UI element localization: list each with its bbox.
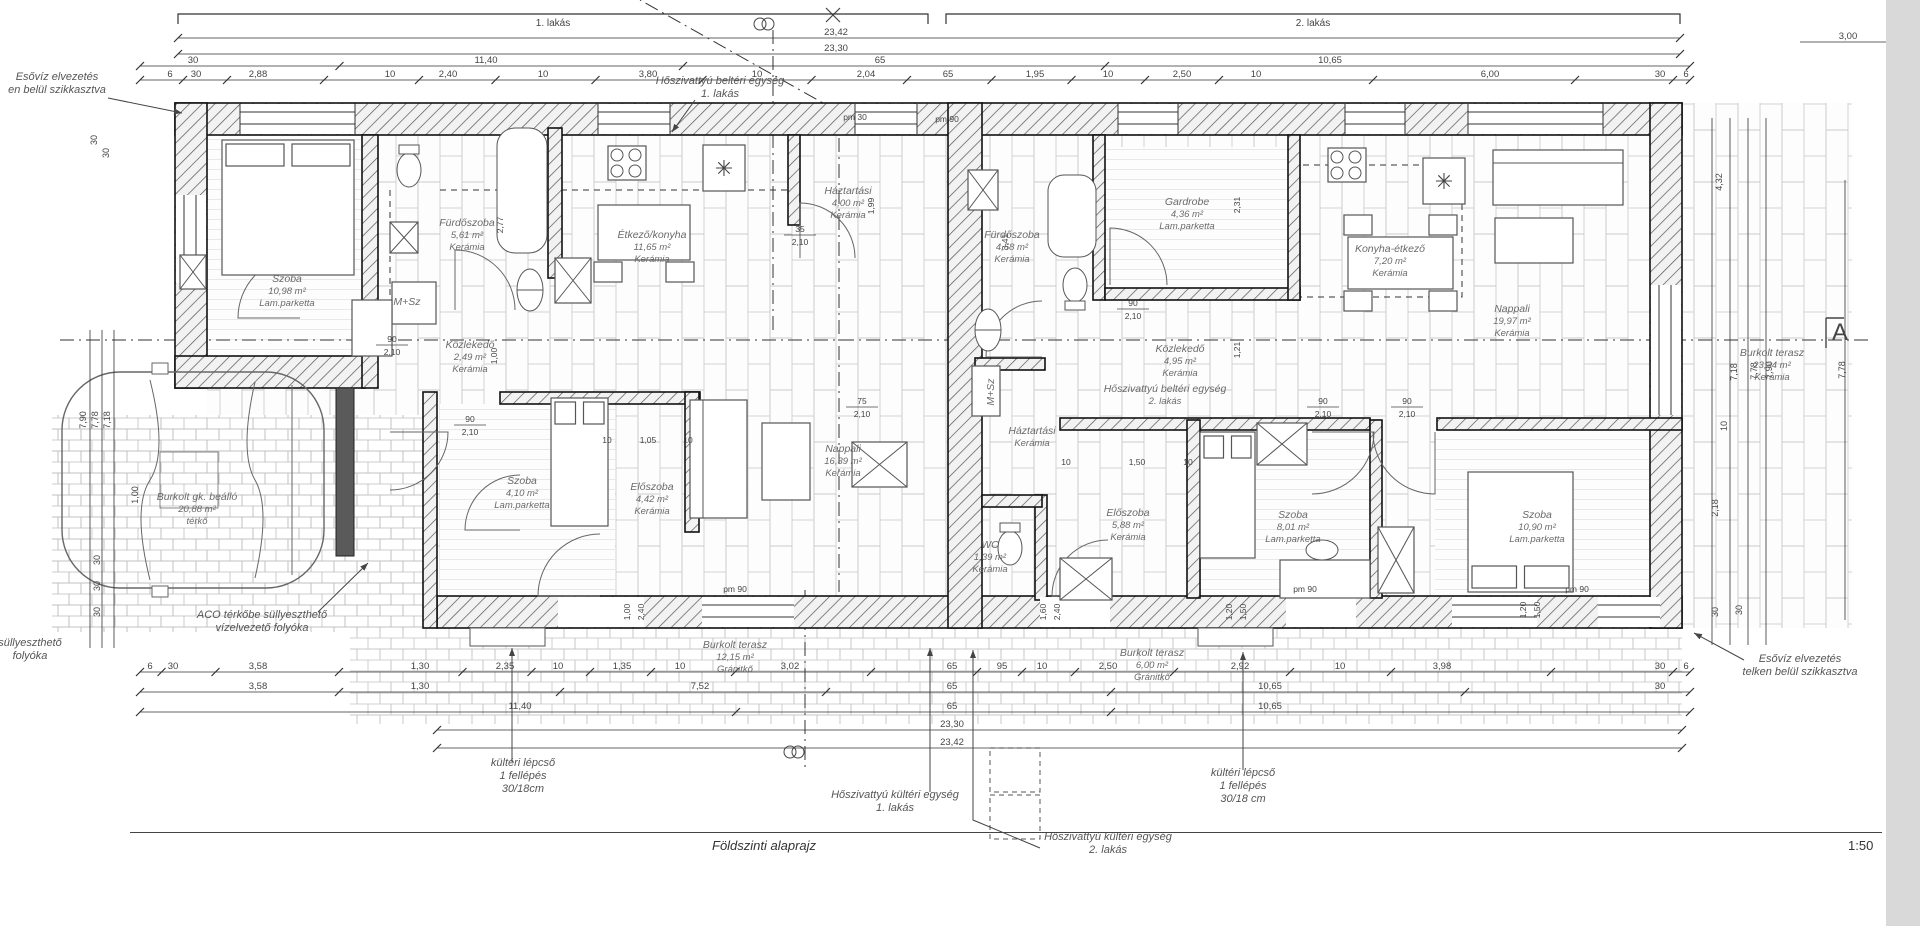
door-dim-top: 35 bbox=[795, 224, 805, 234]
coffee-table-icon bbox=[1495, 218, 1573, 263]
dim-label: 2,50 bbox=[1173, 69, 1192, 80]
annotation-hoszivattyu-kulteri-1: Hőszivattyú kültéri egység1. lakás bbox=[831, 789, 960, 814]
chair-icon bbox=[594, 262, 622, 282]
left-dim: 7,90 bbox=[78, 411, 88, 429]
left-dim: 7,78 bbox=[90, 411, 100, 429]
small-dim: 2,31 bbox=[1232, 196, 1242, 213]
dim-label: 65 bbox=[947, 661, 958, 672]
small-dim: 10 bbox=[602, 435, 612, 445]
small-dim: 1,20 bbox=[1224, 603, 1234, 620]
dim-label: 1,30 bbox=[411, 661, 430, 672]
small-dim: 10 bbox=[1061, 457, 1071, 467]
dim-label: 10 bbox=[1037, 661, 1048, 672]
chair-icon bbox=[666, 262, 694, 282]
dim-label: 1,35 bbox=[613, 661, 632, 672]
bathtub-icon bbox=[1048, 175, 1096, 257]
stove-icon bbox=[608, 146, 646, 180]
toilet-icon bbox=[1063, 268, 1087, 310]
dim-label: 11,40 bbox=[474, 55, 497, 66]
dim-label: 3,58 bbox=[249, 661, 268, 672]
small-dim: 2,77 bbox=[495, 216, 505, 233]
door-dim-top: 90 bbox=[1402, 396, 1412, 406]
fridge-asterisk-icon: ✳ bbox=[1435, 169, 1453, 194]
small-dim: 1,20 bbox=[1518, 601, 1528, 618]
room-label-nappali-2: Nappali19,97 m²Kerámia bbox=[1493, 303, 1531, 339]
right-dim: 4,32 bbox=[1714, 173, 1724, 191]
room-label-nappali-1: Nappali16,39 m²Kerámia bbox=[824, 443, 862, 479]
fridge-asterisk-icon: ✳ bbox=[715, 156, 733, 181]
door-dim-bottom: 2,10 bbox=[384, 347, 401, 357]
right-dim: 7,78 bbox=[1837, 361, 1847, 379]
annotation-folyoka-left: süllyeszthetőfolyóka bbox=[0, 637, 63, 662]
small-dim: 1,21 bbox=[1232, 341, 1242, 358]
dim-label: 10 bbox=[538, 69, 549, 80]
pillow-icon bbox=[1232, 436, 1252, 458]
small-dim: 1,50 bbox=[1532, 601, 1542, 618]
chair-icon bbox=[1344, 291, 1372, 311]
small-dim: pm 30 bbox=[843, 112, 867, 122]
dim-label: 10 bbox=[1335, 661, 1346, 672]
dim-label: 10,65 bbox=[1258, 681, 1282, 692]
small-dim: pm 90 bbox=[1565, 584, 1589, 594]
stove-icon bbox=[1328, 148, 1366, 182]
dim-label: 10,65 bbox=[1258, 701, 1282, 712]
left-dim: 30 bbox=[92, 555, 102, 565]
dim-label: 10 bbox=[1251, 69, 1262, 80]
pillow-icon bbox=[226, 144, 284, 166]
dim-label: 1,95 bbox=[1026, 69, 1045, 80]
dim-label: 3,58 bbox=[249, 681, 268, 692]
coffee-table-icon bbox=[762, 423, 810, 500]
dim-label: 30 bbox=[188, 55, 199, 66]
dim-label: 6,00 bbox=[1481, 69, 1500, 80]
chair-icon bbox=[1429, 291, 1457, 311]
door-dim-bottom: 2,10 bbox=[1315, 409, 1332, 419]
apartment-bar-label-1: 1. lakás bbox=[536, 18, 570, 29]
dim-label: 30 bbox=[191, 69, 202, 80]
dim-label: 30 bbox=[1655, 661, 1666, 672]
dim-label: 3,80 bbox=[639, 69, 658, 80]
right-dim: 30 bbox=[1734, 605, 1744, 615]
right-dim: 2,18 bbox=[1710, 499, 1720, 517]
right-dim: 30 bbox=[1710, 607, 1720, 617]
left-dim: 7,18 bbox=[102, 411, 112, 429]
dim-label: 2,04 bbox=[857, 69, 876, 80]
section-marker-a: A bbox=[1832, 319, 1848, 346]
annotation-hoszivattyu-belteri-1: Hőszivattyú beltéri egység1. lakás bbox=[656, 75, 785, 100]
pillow-icon bbox=[292, 144, 350, 166]
dim-label: 6 bbox=[147, 661, 152, 672]
small-dim: pm 90 bbox=[1293, 584, 1317, 594]
annotation-esoviz-right: Esővíz elvezetéstelken belül szikkasztva bbox=[1743, 653, 1858, 678]
apartment-bar-label-2: 2. lakás bbox=[1296, 18, 1330, 29]
dim-label: 65 bbox=[947, 681, 958, 692]
total-dim: 23,42 bbox=[940, 737, 964, 748]
door-dim-top: 90 bbox=[1318, 396, 1328, 406]
small-dim: 2,40 bbox=[1052, 603, 1062, 620]
door-dim-bottom: 2,10 bbox=[792, 237, 809, 247]
chair-icon bbox=[1344, 215, 1372, 235]
annotation-aco-folyoka: ACO térkőbe süllyeszthetővízelvezető fol… bbox=[196, 609, 328, 634]
pillow-icon bbox=[1204, 436, 1224, 458]
dim-label: 30 bbox=[1655, 69, 1666, 80]
pillow-icon bbox=[584, 402, 605, 424]
door-dim-bottom: 2,10 bbox=[1125, 311, 1142, 321]
dim-label: 10,65 bbox=[1318, 55, 1342, 66]
dim-label: 95 bbox=[997, 661, 1008, 672]
drawing-title: Földszinti alaprajz bbox=[712, 838, 816, 853]
left-dim: 30 bbox=[89, 135, 99, 145]
annotation-lepcso-left: kültéri lépcső1 fellépés30/18cm bbox=[491, 757, 556, 795]
dim-label: 6 bbox=[1683, 69, 1688, 80]
pillow-icon bbox=[555, 402, 576, 424]
dim-label: 10 bbox=[1103, 69, 1114, 80]
dim-label: 2,88 bbox=[249, 69, 268, 80]
dim-label: 10 bbox=[385, 69, 396, 80]
heatpump-outdoor-unit-icon bbox=[990, 748, 1040, 792]
small-dim: pm 90 bbox=[723, 584, 747, 594]
room-label-eloszoba-2: Előszoba5,88 m²Kerámia bbox=[1106, 507, 1149, 543]
left-dim: 30 bbox=[92, 581, 102, 591]
chair-icon bbox=[1429, 215, 1457, 235]
page-right-margin bbox=[1886, 0, 1920, 926]
dim-label: 3,98 bbox=[1433, 661, 1452, 672]
small-dim: 1,05 bbox=[640, 435, 657, 445]
left-dim: 30 bbox=[101, 148, 111, 158]
door-dim-top: 75 bbox=[857, 396, 867, 406]
door-dim-bottom: 2,10 bbox=[462, 427, 479, 437]
annotation-lepcso-right: kültéri lépcső1 fellépés30/18 cm bbox=[1211, 767, 1276, 805]
left-dim: 1,00 bbox=[130, 486, 140, 504]
drawing-scale: 1:50 bbox=[1848, 838, 1873, 853]
small-dim: 1,50 bbox=[1238, 603, 1248, 620]
dim-label: 2,50 bbox=[1099, 661, 1118, 672]
left-dim: 30 bbox=[92, 607, 102, 617]
small-dim: 1,50 bbox=[1129, 457, 1146, 467]
titleblock-rule bbox=[130, 832, 1882, 833]
floorplan-stage: ✳✳1. lakás2. lakás23,4223,303,003011,406… bbox=[0, 0, 1920, 926]
pillow-icon bbox=[1472, 566, 1517, 588]
dim-label: 6 bbox=[167, 69, 172, 80]
small-dim: 2,40 bbox=[636, 603, 646, 620]
door-dim-bottom: 2,10 bbox=[854, 409, 871, 419]
room-label-eloszoba-1: Előszoba4,42 m²Kerámia bbox=[630, 481, 673, 517]
small-dim: 1,60 bbox=[1038, 603, 1048, 620]
small-dim: pm 90 bbox=[935, 114, 959, 124]
pillow-icon bbox=[1525, 566, 1570, 588]
dim-label: 30 bbox=[1655, 681, 1666, 692]
dim-label: 3,02 bbox=[781, 661, 800, 672]
door-dim-top: 90 bbox=[465, 414, 475, 424]
floorplan-drawing: ✳✳1. lakás2. lakás23,4223,303,003011,406… bbox=[0, 0, 1920, 926]
right-dim: 7,18 bbox=[1729, 363, 1739, 381]
dim-label: 30 bbox=[168, 661, 179, 672]
dim-label: 2,40 bbox=[439, 69, 458, 80]
door-dim-bottom: 2,10 bbox=[1399, 409, 1416, 419]
dim-label: 10 bbox=[553, 661, 564, 672]
sofa-icon bbox=[1493, 150, 1623, 205]
door-dim-top: 90 bbox=[387, 334, 397, 344]
dim-label: 2,35 bbox=[496, 661, 515, 672]
dim-label: 65 bbox=[943, 69, 954, 80]
small-dim: 1,00 bbox=[622, 603, 632, 620]
dim-label: 65 bbox=[875, 55, 886, 66]
top-right-dim: 3,00 bbox=[1839, 31, 1858, 42]
total-dim: 23,30 bbox=[940, 719, 964, 730]
annotation-hoszivattyu-kulteri-2: Hőszivattyú kültéri egység2. lakás bbox=[1044, 831, 1173, 856]
toilet-icon bbox=[397, 145, 421, 187]
total-dim: 23,42 bbox=[824, 27, 848, 38]
small-dim: 10 bbox=[683, 435, 693, 445]
dim-label: 2,92 bbox=[1231, 661, 1250, 672]
room-label-msz-1: M+Sz bbox=[393, 296, 421, 308]
door-dim-top: 90 bbox=[1128, 298, 1138, 308]
dim-label: 10 bbox=[675, 661, 686, 672]
dim-label: 1,30 bbox=[411, 681, 430, 692]
annotation-esoviz-left: Esővíz elvezetésen belül szikkasztva bbox=[8, 71, 106, 96]
small-dim: 10 bbox=[1183, 457, 1193, 467]
room-label-msz-2: M+Sz bbox=[985, 378, 997, 406]
total-dim: 23,30 bbox=[824, 43, 848, 54]
small-dim: 1,99 bbox=[866, 197, 876, 214]
dim-label: 7,52 bbox=[691, 681, 710, 692]
dim-label: 65 bbox=[947, 701, 958, 712]
dim-label: 6 bbox=[1683, 661, 1688, 672]
sofa-icon bbox=[690, 400, 747, 518]
right-dim: 10 bbox=[1719, 421, 1729, 431]
